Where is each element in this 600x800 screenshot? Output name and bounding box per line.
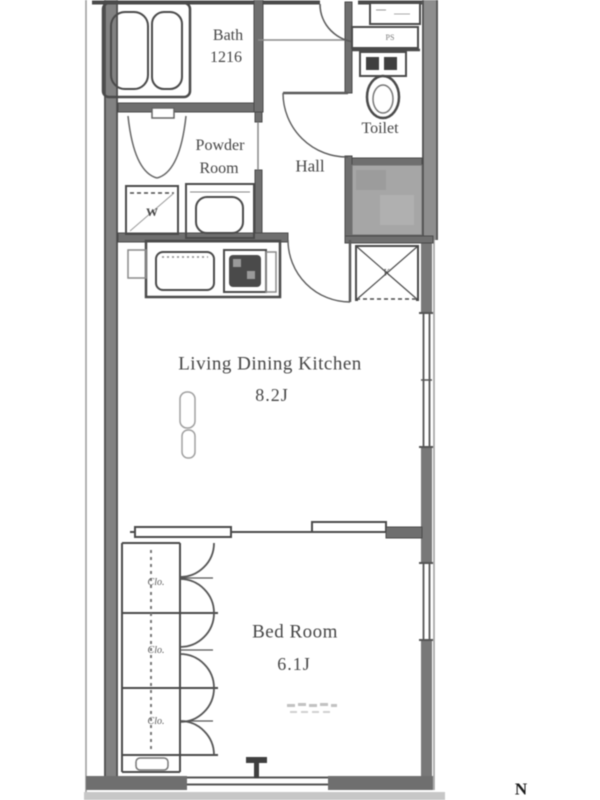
closet-label-1: Clo. — [148, 578, 165, 588]
floor-plan-canvas — [0, 0, 600, 800]
ldk-label: Living Dining Kitchen — [178, 355, 362, 374]
ldk-faint-object — [180, 392, 195, 458]
north-indicator: N — [515, 781, 527, 798]
hall-label: Hall — [295, 158, 324, 175]
powder-room-label-line1: Powder — [196, 138, 245, 154]
bedroom-window — [419, 563, 433, 640]
floor-plan-page: Bath 1216 Powder Room Hall Toilet Living… — [0, 0, 600, 800]
ldk-size-label: 8.2J — [255, 386, 289, 404]
closet — [122, 543, 218, 772]
bath-label: Bath — [213, 28, 243, 44]
powder-room-label-line2: Room — [199, 161, 238, 177]
floor-plan: Bath 1216 Powder Room Hall Toilet Living… — [0, 0, 600, 800]
bath-size-label: 1216 — [210, 50, 242, 66]
toilet-door-arc — [283, 93, 348, 157]
toilet-label: Toilet — [361, 121, 398, 137]
bedroom-size-label: 6.1J — [277, 655, 311, 673]
pipe-space-label: PS — [386, 34, 395, 42]
bedroom-faint-text — [287, 703, 337, 713]
kitchen-counter — [128, 241, 280, 297]
bath-door — [128, 108, 186, 178]
kitchen-sink — [156, 252, 214, 290]
kitchen-box-label: K — [384, 269, 391, 278]
ldk-door-arc — [288, 240, 350, 302]
toilet-fixture — [360, 52, 406, 118]
balcony-window — [187, 757, 328, 785]
sliding-partition — [130, 522, 422, 538]
shaft-area — [352, 165, 422, 235]
washing-machine-label: W — [146, 206, 158, 218]
vanity-sink — [186, 184, 254, 238]
ldk-window — [419, 313, 433, 447]
meter-box — [370, 3, 420, 24]
closet-label-3: Clo. — [148, 717, 165, 727]
closet-door-arcs — [180, 543, 214, 755]
bedroom-label: Bed Room — [252, 623, 338, 642]
closet-label-2: Clo. — [148, 646, 165, 656]
